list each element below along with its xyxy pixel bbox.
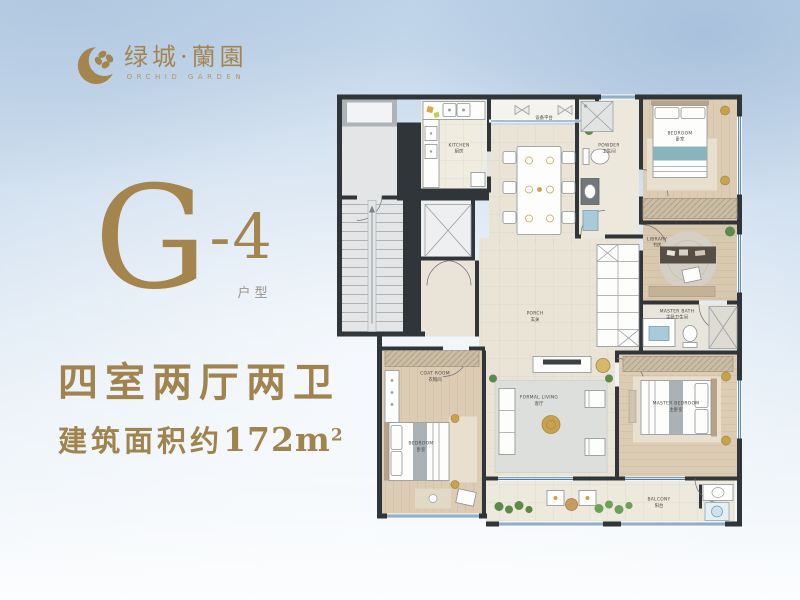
plant-icon: [725, 227, 735, 237]
side-table-icon: [596, 359, 610, 373]
kitchen-label-zh: 厨房: [455, 148, 464, 155]
living-label-en: FORMAL LIVING: [520, 395, 559, 401]
powder-label-zh: 卫生间: [602, 148, 615, 155]
coat-room-label-zh: 衣帽间: [428, 376, 441, 383]
master-bedroom-label-zh: 主卧室: [669, 406, 683, 413]
equipment-platform-label: 设备平台: [535, 114, 553, 121]
porch-label-en: PORCH: [527, 311, 544, 317]
window-powder-top: [601, 95, 635, 100]
marketing-floorplan-page: 绿城·蘭園 ORCHID GARDEN G -4 户型 四室两厅两卫 建筑面积约…: [0, 0, 800, 600]
bedroom-left-label-zh: 卧室: [417, 446, 426, 453]
powder-label-en: POWDER: [598, 143, 619, 149]
master-bath-label-en: MASTER BATH: [660, 309, 694, 315]
washbasin-icon: [585, 185, 596, 199]
laundry-sink-icon: [712, 488, 724, 498]
brand-name: 绿城·蘭園: [124, 44, 248, 70]
armchair-icon: [585, 391, 605, 408]
bedroom-top-label-zh: 卧室: [676, 136, 685, 143]
bedroom-top-label-en: BEDROOM: [667, 131, 692, 137]
coffee-table-icon: [542, 416, 560, 434]
pouf-icon: [451, 415, 459, 423]
sofa-icon: [499, 389, 515, 455]
vase-icon: [537, 187, 542, 192]
library-label-zh: 书房: [653, 242, 662, 249]
pouf-icon: [722, 372, 731, 381]
master-bedroom-label-en: MASTER BEDROOM: [653, 401, 700, 407]
plant-icon: [489, 375, 497, 383]
crescent-clover-icon: [76, 44, 116, 92]
balcony-label-en: BALCONY: [647, 497, 670, 503]
toilet-icon: [683, 326, 697, 342]
unit-code-letter: G: [94, 168, 207, 310]
brand-subtitle: ORCHID GARDEN: [124, 73, 248, 81]
unit-code-suffix: -4: [209, 200, 273, 273]
unit-code-suffix-block: -4 户型: [209, 206, 273, 301]
window-master-right: [737, 381, 742, 439]
kitchen-label-en: KITCHEN: [448, 143, 469, 149]
plant-icon: [605, 375, 613, 383]
mop-pool-icon: [583, 211, 598, 231]
sliding-door-living-balcony: [498, 477, 573, 481]
tv-icon: [543, 360, 581, 365]
balcony-table-icon: [566, 499, 578, 511]
balcony-label-zh: 阳台: [655, 502, 664, 509]
unit-area: 建筑面积约172m2: [58, 418, 347, 460]
window-bedroom-left-bottom: [387, 514, 479, 519]
coat-room-label-en: COAT ROOM: [420, 371, 450, 377]
armchair-icon: [585, 439, 605, 456]
window-master-balcony: [625, 477, 685, 481]
pouf-icon: [721, 106, 730, 115]
master-bath-label-zh: 主卧卫生间: [666, 314, 688, 321]
porch-label-zh: 玄关: [531, 316, 540, 323]
brand-logo: 绿城·蘭園 ORCHID GARDEN: [76, 44, 248, 92]
area-unit: m: [295, 420, 331, 459]
floorplan-drawing: KITCHEN 厨房 设备平台: [337, 87, 742, 535]
window-bedroom-top-right: [737, 117, 742, 195]
bathtub-icon: [649, 327, 669, 341]
library-label-en: LIBRARY: [647, 237, 667, 243]
room-master-bedroom: MASTER BEDROOM 主卧室: [623, 357, 733, 446]
closet-icon: [385, 371, 399, 423]
unit-code: G -4 户型: [94, 168, 274, 310]
unit-headline: 四室两厅两卫: [58, 350, 340, 408]
unit-code-caption: 户型: [209, 282, 273, 301]
bedroom-left-label-en: BEDROOM: [408, 441, 433, 447]
bench-icon: [629, 391, 636, 423]
area-number: 172: [223, 420, 295, 459]
floorplan: KITCHEN 厨房 设备平台: [337, 87, 742, 535]
sideboard-icon: [649, 287, 715, 297]
brand-text: 绿城·蘭園 ORCHID GARDEN: [124, 44, 248, 81]
living-label-zh: 客厅: [535, 400, 544, 407]
area-label: 建筑面积约: [58, 424, 223, 458]
appliance-icon: [471, 173, 485, 187]
window-library-right: [737, 235, 742, 293]
